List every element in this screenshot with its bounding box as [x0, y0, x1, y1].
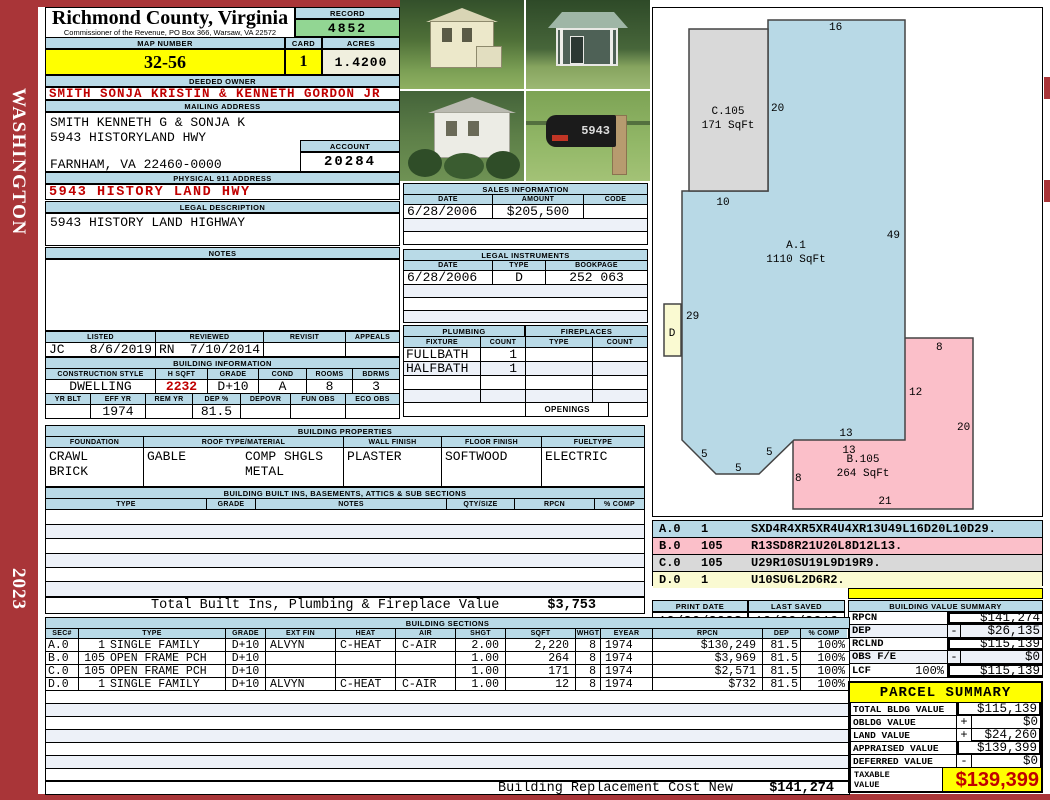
foundation-line-1: CRAWL	[49, 449, 88, 464]
sales-date-value: 6/28/2006	[404, 205, 493, 218]
heat-header: HEAT	[336, 629, 396, 638]
photo-house-window-1	[442, 28, 452, 42]
empty-row	[45, 756, 850, 769]
foundation-line-2: BRICK	[49, 464, 88, 479]
building-info-values-1: DWELLING 2232 D+10 A 8 3	[45, 380, 400, 394]
cell-air	[396, 652, 456, 664]
deeded-owner-value: SMITH SONJA KRISTIN & KENNETH GORDON JR	[45, 87, 400, 100]
type-name: SINGLE FAMILY	[110, 678, 200, 690]
bvs-rclnd-label: RCLND	[849, 638, 948, 650]
grade-value: D+10	[208, 380, 259, 393]
comp-col-header: % COMP	[801, 629, 847, 638]
ext-fin-header: EXT FIN	[266, 629, 336, 638]
instrument-date-header: DATE	[404, 261, 493, 270]
wall-finish-value: PLASTER	[344, 448, 442, 486]
bvs-row-lcf: LCF 100% $115,139	[848, 664, 1043, 678]
parcel-row-appraised: APPRAISED VALUE $139,399	[850, 742, 1041, 755]
bvs-obs-label: OBS F/E	[849, 651, 948, 663]
map-number-value: 32-56	[45, 49, 285, 75]
dep-text: 81.5	[770, 652, 798, 664]
parcel-op-text: +	[960, 728, 967, 742]
empty-row	[45, 743, 850, 756]
sales-code-value	[584, 205, 647, 218]
cell-sqft: 171	[506, 665, 576, 677]
bvs-row-rpcn: RPCN $141,274	[848, 612, 1043, 625]
sketch-canvas: 16 20 C.105 171 SqFt 10 49 A.1 1110 SqFt…	[652, 7, 1043, 517]
card-header: CARD	[285, 37, 322, 49]
cell-ext	[266, 665, 336, 677]
physical-911-value: 5943 HISTORY LAND HWY	[45, 184, 400, 200]
building-info-cols-2: YR BLT EFF YR REM YR DEP % DEPOVR FUN OB…	[45, 394, 400, 405]
photo-shed-post-2	[610, 28, 613, 66]
listed-header: LISTED	[46, 332, 156, 342]
mailing-address-header: MAILING ADDRESS	[45, 100, 400, 112]
photo-house-window-2	[462, 28, 472, 42]
replacement-cost-row: Building Replacement Cost New $141,274	[45, 781, 850, 795]
rpcn-text: $130,249	[701, 639, 756, 651]
type-num: 1	[79, 678, 105, 690]
parcel-label-text: LAND VALUE	[853, 730, 910, 741]
bvs-value-text: $26,135	[988, 625, 1041, 637]
top-border	[0, 0, 400, 7]
property-photo-mailbox: 5943	[526, 91, 650, 181]
photo-house2-roof	[428, 97, 516, 113]
sales-cols: DATE AMOUNT CODE	[403, 195, 648, 205]
cell-whgt: 8	[576, 639, 601, 651]
ext-text: ALVYN	[270, 639, 305, 651]
cell-sec: C.0	[46, 665, 79, 677]
bdrms-value: 3	[353, 380, 399, 393]
legend-vector: U29R10SU19L9D19R9.	[751, 556, 881, 570]
cell-heat	[336, 652, 396, 664]
sqft-text: 2,220	[534, 639, 569, 651]
parcel-op-text: +	[960, 715, 967, 729]
grade-text: D+10	[232, 678, 260, 690]
rem-yr-header: REM YR	[146, 394, 193, 404]
eyear-header: EYEAR	[601, 629, 653, 638]
grade-text: D+10	[232, 665, 260, 677]
dim-b-right-upper: 12	[909, 387, 922, 399]
dim-b-top: 8	[936, 342, 943, 354]
bvs-obs-op: -	[948, 651, 961, 663]
empty-row	[45, 525, 645, 539]
rpcn-text: $2,571	[715, 665, 756, 677]
parcel-value-text: $0	[1023, 754, 1038, 768]
legal-description-header: LEGAL DESCRIPTION	[45, 201, 400, 213]
bvs-label-text: OBS F/E	[852, 651, 896, 663]
built-ins-type-header: TYPE	[46, 499, 207, 509]
built-ins-total-value: $3,753	[547, 598, 596, 613]
heat-text: C-HEAT	[340, 639, 381, 651]
bvs-dep-label: DEP	[849, 625, 948, 637]
plumbing-header: PLUMBING	[403, 325, 525, 337]
legend-num: 1	[701, 573, 751, 587]
shgt-text: 1.00	[471, 652, 499, 664]
openings-text: OPENINGS	[544, 405, 589, 414]
photo-shed-door	[570, 36, 584, 64]
cell-sqft: 2,220	[506, 639, 576, 651]
fixture-1: FULLBATH	[404, 348, 481, 361]
parcel-label-text: OBLDG VALUE	[853, 717, 916, 728]
revisit-cell	[264, 343, 346, 356]
bvs-lcf-value: $115,139	[948, 664, 1042, 677]
built-ins-total-row: Total Built Ins, Plumbing & Fireplace Va…	[45, 597, 645, 614]
eff-yr-value: 1974	[91, 405, 146, 418]
fun-obs-header: FUN OBS	[291, 394, 346, 404]
sec-text: A.0	[48, 639, 69, 651]
roof-material-value: COMP SHGLS METAL	[245, 449, 323, 479]
photo-shed-post	[560, 28, 563, 66]
listed-cell: JC 8/6/2019	[46, 343, 156, 356]
dep-pct-value: 81.5	[193, 405, 241, 418]
sec-text: C.0	[48, 665, 69, 677]
parcel-value-text: $139,399	[977, 741, 1037, 755]
instrument-type-header: TYPE	[493, 261, 546, 270]
comp-text: 100%	[817, 652, 845, 664]
bvs-value-text: $141,274	[980, 612, 1040, 624]
legend-vector: R13SD8R21U20L8D12L13.	[751, 539, 902, 553]
parcel-row-taxable: TAXABLE VALUE $139,399	[850, 768, 1041, 792]
bvs-lcf-pct: 100%	[915, 664, 944, 677]
sales-date-text: 6/28/2006	[407, 205, 477, 218]
bvs-row-obs: OBS F/E - $0	[848, 651, 1043, 664]
empty-cell	[481, 376, 526, 389]
review-value-row: JC 8/6/2019 RN 7/10/2014	[45, 343, 400, 357]
foundation-header: FOUNDATION	[46, 437, 144, 447]
sec-header: SEC#	[46, 629, 79, 638]
deeded-owner-header: DEEDED OWNER	[45, 75, 400, 87]
openings-label: OPENINGS	[525, 403, 609, 416]
parcel-value-text: $115,139	[977, 702, 1037, 716]
parcel-value: $0	[972, 755, 1041, 768]
fixture-2-count-text: 1	[509, 362, 517, 375]
cell-sec: A.0	[46, 639, 79, 651]
eff-yr-header: EFF YR	[91, 394, 146, 404]
rooms-value: 8	[307, 380, 353, 393]
dim-b-bottom: 21	[878, 496, 892, 508]
shgt-header: SHGT	[456, 629, 506, 638]
type-name: OPEN FRAME PCH	[110, 665, 207, 677]
empty-cell	[526, 390, 593, 402]
edge-mark-1	[1044, 77, 1050, 99]
parcel-summary-title: PARCEL SUMMARY	[850, 683, 1041, 703]
page-subtitle: Commissioner of the Revenue, PO Box 366,…	[64, 28, 276, 37]
sketch-label-d-name: D	[669, 328, 676, 340]
fireplace-type-2	[526, 362, 593, 375]
fixture-1-text: FULLBATH	[406, 348, 468, 361]
built-ins-rpcn-header: RPCN	[515, 499, 595, 509]
roof-header: ROOF TYPE/MATERIAL	[144, 437, 344, 447]
map-number-header: MAP NUMBER	[45, 37, 285, 49]
fixture-1-count: 1	[481, 348, 526, 361]
physical-911-header: PHYSICAL 911 ADDRESS	[45, 172, 400, 184]
parcel-op: +	[957, 729, 972, 742]
cell-comp: 100%	[801, 652, 847, 664]
mailing-line-2: 5943 HISTORYLAND HWY	[50, 130, 206, 145]
section-row-a: A.0 1SINGLE FAMILY D+10 ALVYN C-HEAT C-A…	[45, 639, 850, 652]
sqft-text: 171	[548, 665, 569, 677]
construction-style-value: DWELLING	[46, 380, 156, 393]
cell-whgt: 8	[576, 652, 601, 664]
empty-row	[403, 285, 648, 298]
air-text: C-AIR	[402, 639, 437, 651]
notes-header: NOTES	[45, 247, 400, 259]
eyear-text: 1974	[605, 665, 633, 677]
parcel-label-text: TOTAL BLDG VALUE	[853, 704, 944, 715]
listed-by: JC	[49, 343, 65, 356]
review-header-row: LISTED REVIEWED REVISIT APPEALS	[45, 331, 400, 343]
plumbing-row-3	[403, 376, 648, 390]
ext-text: ALVYN	[270, 678, 305, 690]
fixture-header: FIXTURE	[404, 337, 481, 347]
legend-row-a: A.0 1 SXD4R4XR5XR4U4XR13U49L16D20L10D29.	[653, 521, 1042, 538]
built-ins-total-label: Total Built Ins, Plumbing & Fireplace Va…	[151, 598, 499, 613]
instrument-type-text: D	[515, 271, 523, 284]
dim-a-left: 29	[686, 311, 699, 323]
heat-text: C-HEAT	[340, 678, 381, 690]
acres-header: ACRES	[322, 37, 400, 49]
cell-eyear: 1974	[601, 678, 653, 690]
yellow-divider	[848, 588, 1043, 599]
grade-col-header: GRADE	[226, 629, 266, 638]
mailing-line-3: FARNHAM, VA 22460-0000	[50, 157, 222, 172]
cond-value: A	[259, 380, 307, 393]
empty-row	[45, 582, 645, 597]
cell-sqft: 12	[506, 678, 576, 690]
account-value: 20284	[300, 152, 400, 172]
parcel-summary: PARCEL SUMMARY TOTAL BLDG VALUE $115,139…	[848, 681, 1043, 793]
plumbing-row-4	[403, 390, 648, 403]
legal-instruments-header: LEGAL INSTRUMENTS	[403, 249, 648, 261]
empty-cell	[404, 376, 481, 389]
photo-bush-3	[486, 151, 520, 179]
bvs-obs-value: $0	[961, 651, 1042, 663]
sketch-label-c-name: C.105	[711, 106, 744, 118]
sqft-text: 264	[548, 652, 569, 664]
legend-vector: SXD4R4XR5XR4U4XR13U49L16D20L10D29.	[751, 522, 996, 536]
reviewed-date: 7/10/2014	[190, 343, 260, 356]
dim-a-bottom: 13	[839, 428, 852, 440]
sketch-legend: A.0 1 SXD4R4XR5XR4U4XR13U49L16D20L10D29.…	[652, 520, 1043, 586]
floor-finish-value: SOFTWOOD	[442, 448, 542, 486]
legend-sec: A.0	[653, 522, 701, 536]
photo-mailbox-flag	[552, 135, 568, 141]
cell-sec: D.0	[46, 678, 79, 690]
property-photo-side	[400, 91, 524, 181]
legend-row-d: D.0 1 U10SU6L2D6R2.	[653, 572, 1042, 588]
comp-text: 100%	[817, 665, 845, 677]
record-header: RECORD	[295, 7, 400, 19]
sidebar-state-label: WASHINGTON	[7, 88, 29, 273]
grade-text: D+10	[232, 639, 260, 651]
page-title: Richmond County, Virginia	[52, 8, 288, 28]
instrument-bookpage-value: 252 063	[546, 271, 647, 284]
dim-a-right: 49	[887, 230, 900, 242]
cell-sec: B.0	[46, 652, 79, 664]
taxable-value: $139,399	[943, 768, 1041, 792]
floor-finish-text: SOFTWOOD	[445, 449, 507, 464]
sec-text: D.0	[48, 678, 69, 690]
whgt-header: WHGT	[576, 629, 601, 638]
legend-sec: D.0	[653, 573, 701, 587]
sketch-label-a-sqft: 1110 SqFt	[766, 254, 825, 266]
rpcn-text: $3,969	[715, 652, 756, 664]
sales-amount-text: $205,500	[507, 205, 569, 218]
cell-comp: 100%	[801, 639, 847, 651]
type-header: TYPE	[79, 629, 226, 638]
taxable-label-text: TAXABLE VALUE	[854, 770, 909, 790]
cell-grade: D+10	[226, 678, 266, 690]
empty-cell	[481, 390, 526, 402]
fuel-type-header: FUELTYPE	[542, 437, 644, 447]
cell-shgt: 1.00	[456, 652, 506, 664]
notes-box	[45, 259, 400, 331]
building-sections-cols: SEC# TYPE GRADE EXT FIN HEAT AIR SHGT SQ…	[45, 629, 850, 639]
replacement-cost-value: $141,274	[769, 781, 834, 795]
cell-shgt: 1.00	[456, 665, 506, 677]
cell-eyear: 1974	[601, 665, 653, 677]
whgt-text: 8	[589, 678, 596, 690]
wall-finish-header: WALL FINISH	[344, 437, 442, 447]
cell-ext: ALVYN	[266, 678, 336, 690]
dep-text: 81.5	[770, 639, 798, 651]
bvs-rpcn-label: RPCN	[849, 612, 948, 624]
foundation-value: CRAWL BRICK	[46, 448, 144, 486]
empty-row	[45, 730, 850, 743]
cell-eyear: 1974	[601, 639, 653, 651]
legend-num: 105	[701, 556, 751, 570]
instrument-bookpage-header: BOOKPAGE	[546, 261, 647, 270]
parcel-label-text: DEFERRED VALUE	[853, 756, 933, 767]
yr-blt-value	[46, 405, 91, 418]
plumbing-row-2: HALFBATH 1	[403, 362, 648, 376]
cell-air: C-AIR	[396, 678, 456, 690]
cell-dep: 81.5	[763, 678, 801, 690]
sales-date-header: DATE	[404, 195, 493, 204]
legal-description-text: 5943 HISTORY LAND HIGHWAY	[46, 214, 245, 230]
built-ins-qty-header: QTY/SIZE	[447, 499, 515, 509]
empty-cell	[593, 390, 647, 402]
sales-information-header: SALES INFORMATION	[403, 183, 648, 195]
cell-ext: ALVYN	[266, 639, 336, 651]
parcel-op: -	[957, 755, 972, 768]
empty-row	[403, 298, 648, 311]
fireplace-count-1	[593, 348, 647, 361]
type-name: OPEN FRAME PCH	[110, 652, 207, 664]
dim-chamfer-1: 5	[701, 449, 708, 461]
bvs-label-text: LCF	[852, 665, 871, 677]
empty-row	[403, 311, 648, 323]
built-ins-header: BUILDING BUILT INS, BASEMENTS, ATTICS & …	[45, 487, 645, 499]
legal-instruments-cols: DATE TYPE BOOKPAGE	[403, 261, 648, 271]
parcel-value-text: $24,260	[984, 728, 1037, 742]
fireplaces-header: FIREPLACES	[525, 325, 648, 337]
acres-value: 1.4200	[322, 49, 400, 75]
fixture-2: HALFBATH	[404, 362, 481, 375]
roof-value: GABLE COMP SHGLS METAL	[144, 448, 344, 486]
parcel-label: DEFERRED VALUE	[850, 755, 957, 768]
photo-mailbox-body: 5943	[546, 115, 616, 147]
section-row-b: B.0 105OPEN FRAME PCH D+10 1.00 264 8 19…	[45, 652, 850, 665]
built-ins-grade-header: GRADE	[207, 499, 256, 509]
sketch-label-b-sqft: 264 SqFt	[837, 468, 890, 480]
empty-row	[45, 539, 645, 554]
openings-row: OPENINGS	[403, 403, 648, 417]
type-num: 105	[79, 665, 105, 677]
type-num: 1	[79, 639, 105, 651]
sketch-label-b-name: B.105	[846, 454, 879, 466]
dim-c-bottom: 10	[716, 197, 729, 209]
openings-count	[609, 403, 647, 416]
plumbing-row-1: FULLBATH 1	[403, 348, 648, 362]
revisit-header: REVISIT	[264, 332, 346, 342]
eyear-text: 1974	[605, 678, 633, 690]
record-value: 4852	[295, 19, 400, 37]
fixture-1-count-text: 1	[509, 348, 517, 361]
building-properties-header: BUILDING PROPERTIES	[45, 425, 645, 437]
empty-row	[45, 568, 645, 582]
instrument-bookpage-text: 252 063	[569, 271, 624, 284]
bdrms-header: BDRMS	[353, 369, 399, 379]
cell-grade: D+10	[226, 665, 266, 677]
building-properties-values: CRAWL BRICK GABLE COMP SHGLS METAL PLAST…	[45, 448, 645, 487]
cell-dep: 81.5	[763, 639, 801, 651]
parcel-op-text: -	[960, 754, 967, 768]
cell-shgt: 1.00	[456, 678, 506, 690]
bvs-label-text: RCLND	[852, 638, 884, 650]
parcel-label: APPRAISED VALUE	[850, 742, 957, 755]
bvs-label-text: RPCN	[852, 612, 877, 624]
dep-pct-header: DEP %	[193, 394, 241, 404]
taxable-value-text: $139,399	[956, 769, 1039, 792]
instrument-date-text: 6/28/2006	[407, 271, 477, 284]
parcel-label-text: APPRAISED VALUE	[853, 743, 939, 754]
dep-text: 81.5	[770, 678, 798, 690]
cell-sqft: 264	[506, 652, 576, 664]
grade-header: GRADE	[208, 369, 259, 379]
print-date-header: PRINT DATE	[652, 600, 748, 612]
fuel-type-text: ELECTRIC	[545, 449, 607, 464]
last-saved-header: LAST SAVED	[748, 600, 845, 612]
listed-date: 8/6/2019	[90, 343, 152, 356]
cell-rpcn: $2,571	[653, 665, 763, 677]
eyear-text: 1974	[605, 639, 633, 651]
photo-bush-2	[444, 153, 484, 179]
photo-house2-window-2	[468, 121, 479, 136]
rooms-header: ROOMS	[307, 369, 353, 379]
dim-b-left: 8	[795, 473, 802, 485]
parcel-label: TOTAL BLDG VALUE	[850, 703, 957, 716]
depovr-value	[241, 405, 291, 418]
cell-heat: C-HEAT	[336, 678, 396, 690]
property-record-card: WASHINGTON 2023 Richmond County, Virgini…	[0, 0, 1050, 800]
bvs-rpcn-value: $141,274	[948, 612, 1042, 624]
cell-shgt: 2.00	[456, 639, 506, 651]
photo-house-roof	[426, 8, 498, 22]
cell-whgt: 8	[576, 678, 601, 690]
card-value: 1	[285, 49, 322, 75]
title-box: Richmond County, Virginia Commissioner o…	[45, 7, 295, 37]
bvs-dep-op: -	[948, 625, 961, 637]
empty-row	[403, 232, 648, 245]
bvs-op-text: -	[950, 651, 957, 663]
construction-style-header: CONSTRUCTION STYLE	[46, 369, 156, 379]
sqft-text: 12	[555, 678, 569, 690]
sketch-label-a-name: A.1	[786, 240, 806, 252]
bvs-value-text: $115,139	[980, 638, 1040, 650]
reviewed-header: REVIEWED	[156, 332, 264, 342]
fireplace-count-header: COUNT	[593, 337, 647, 347]
